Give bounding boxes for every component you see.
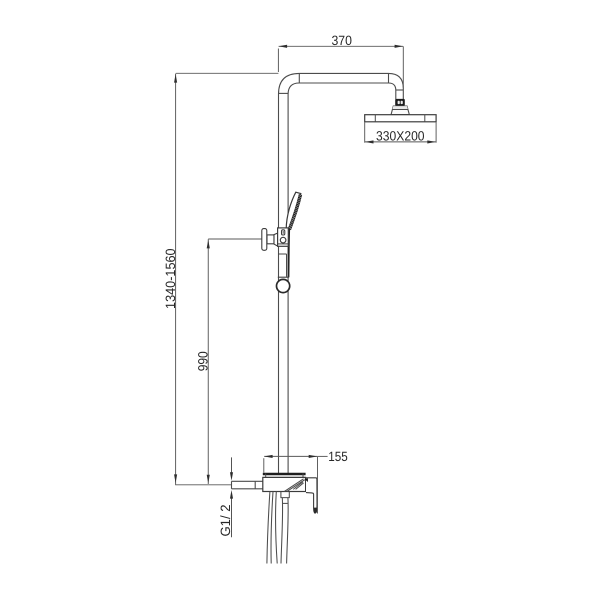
svg-text:G1/ 2: G1/ 2 — [218, 505, 233, 537]
svg-text:330X200: 330X200 — [376, 129, 425, 144]
svg-text:990: 990 — [196, 351, 211, 371]
svg-text:155: 155 — [328, 449, 348, 464]
svg-text:1340-1560: 1340-1560 — [163, 248, 178, 309]
svg-text:370: 370 — [331, 33, 352, 48]
